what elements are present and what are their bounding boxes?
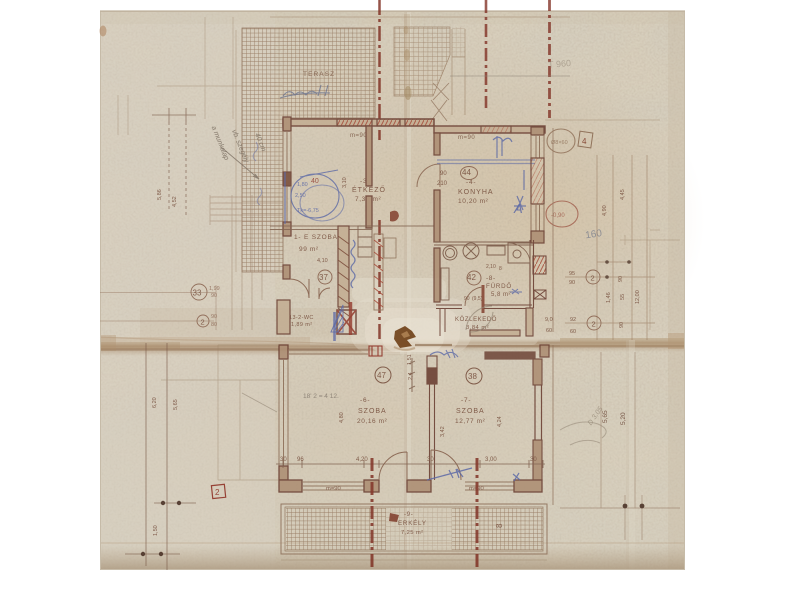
svg-text:30: 30 [280, 457, 287, 463]
svg-text:T 960: T 960 [548, 58, 572, 70]
svg-text:20,16 m²: 20,16 m² [357, 418, 388, 425]
svg-text:12,77 m²: 12,77 m² [455, 418, 486, 425]
svg-text:-8-: -8- [486, 275, 496, 282]
svg-text:30: 30 [427, 457, 434, 463]
svg-text:13-2-WC: 13-2-WC [289, 315, 314, 321]
svg-text:2: 2 [201, 318, 205, 327]
svg-text:1,51: 1,51 [407, 354, 413, 365]
svg-text:60: 60 [570, 329, 576, 335]
svg-text:4,80: 4,80 [339, 412, 345, 423]
svg-text:4,24: 4,24 [497, 416, 503, 427]
svg-text:6,20: 6,20 [152, 397, 158, 408]
svg-text:92: 92 [570, 317, 576, 323]
svg-text:4,90: 4,90 [602, 205, 608, 216]
svg-text:2,10: 2,10 [486, 264, 496, 270]
svg-text:m=90: m=90 [350, 133, 367, 139]
svg-text:55: 55 [620, 294, 626, 300]
svg-text:5,8 m²: 5,8 m² [491, 292, 511, 298]
svg-text:90: 90 [211, 293, 217, 299]
svg-text:1,89 m²: 1,89 m² [291, 322, 312, 328]
svg-text:SZOBA: SZOBA [358, 408, 387, 415]
svg-text:12,00: 12,00 [635, 290, 641, 304]
svg-text:m=90: m=90 [458, 135, 475, 141]
svg-text:90: 90 [464, 296, 470, 302]
svg-text:Ø8×60: Ø8×60 [551, 140, 568, 146]
svg-text:Tk=-6,75: Tk=-6,75 [297, 208, 319, 214]
svg-text:KONYHA: KONYHA [458, 189, 494, 196]
svg-text:80: 80 [211, 322, 217, 328]
svg-text:3,42: 3,42 [440, 426, 446, 437]
svg-text:ERKÉLY: ERKÉLY [398, 520, 427, 527]
svg-text:3,10: 3,10 [342, 177, 348, 188]
svg-text:m=90: m=90 [326, 486, 341, 492]
svg-text:2: 2 [592, 320, 596, 329]
svg-text:37: 37 [319, 273, 328, 282]
svg-text:1,50: 1,50 [153, 525, 159, 536]
svg-text:8: 8 [499, 266, 502, 272]
svg-text:90: 90 [619, 322, 625, 328]
svg-text:4,52: 4,52 [172, 196, 178, 207]
svg-text:-4-: -4- [466, 179, 476, 186]
svg-text:5,65: 5,65 [602, 410, 609, 423]
svg-text:33: 33 [193, 289, 202, 298]
svg-text:44: 44 [462, 168, 471, 177]
svg-text:8: 8 [495, 523, 504, 528]
svg-text:10,20 m²: 10,20 m² [458, 198, 489, 205]
svg-text:30: 30 [530, 457, 537, 463]
svg-text:40: 40 [311, 178, 319, 185]
svg-text:3,00: 3,00 [485, 457, 497, 463]
svg-text:47: 47 [377, 371, 386, 380]
svg-text:TERASZ: TERASZ [303, 71, 335, 78]
svg-text:1,46: 1,46 [606, 292, 612, 303]
svg-text:1,99: 1,99 [209, 286, 220, 292]
svg-text:210: 210 [437, 181, 448, 187]
svg-text:1- E SZOBA: 1- E SZOBA [294, 234, 338, 241]
svg-text:2: 2 [215, 488, 220, 497]
svg-text:A: A [513, 201, 523, 216]
svg-text:90: 90 [569, 280, 575, 286]
svg-text:90: 90 [440, 171, 447, 177]
svg-text:5,20: 5,20 [620, 412, 627, 425]
svg-text:5,86: 5,86 [157, 189, 163, 200]
svg-text:60: 60 [546, 328, 552, 334]
svg-text:4,45: 4,45 [620, 189, 626, 200]
svg-text:4: 4 [582, 137, 587, 146]
svg-text:-7-: -7- [461, 397, 471, 404]
svg-text:5,65: 5,65 [173, 399, 179, 410]
svg-text:2,4: 2,4 [408, 372, 414, 380]
svg-text:42: 42 [467, 273, 476, 282]
svg-text:99 m²: 99 m² [299, 246, 319, 253]
svg-text:9,0: 9,0 [545, 317, 553, 323]
svg-text:-6-: -6- [360, 397, 370, 404]
svg-text:1,80: 1,80 [297, 182, 308, 188]
svg-text:-9-: -9- [404, 511, 413, 518]
svg-text:95: 95 [569, 271, 575, 277]
svg-text:2,50: 2,50 [295, 193, 306, 199]
svg-text:SZOBA: SZOBA [456, 408, 485, 415]
svg-text:96: 96 [297, 457, 304, 463]
svg-text:90: 90 [618, 276, 624, 282]
svg-text:7,25 m²: 7,25 m² [401, 530, 423, 536]
svg-text:2: 2 [591, 274, 595, 283]
svg-text:FÜRDŐ: FÜRDŐ [486, 283, 512, 290]
svg-text:4,20: 4,20 [356, 457, 368, 463]
svg-text:38: 38 [468, 372, 477, 381]
svg-text:18' 2 = 4 12.: 18' 2 = 4 12. [303, 393, 339, 400]
svg-text:(9,5): (9,5) [472, 296, 483, 302]
svg-text:90: 90 [211, 314, 217, 320]
svg-text:4,10: 4,10 [317, 258, 328, 264]
